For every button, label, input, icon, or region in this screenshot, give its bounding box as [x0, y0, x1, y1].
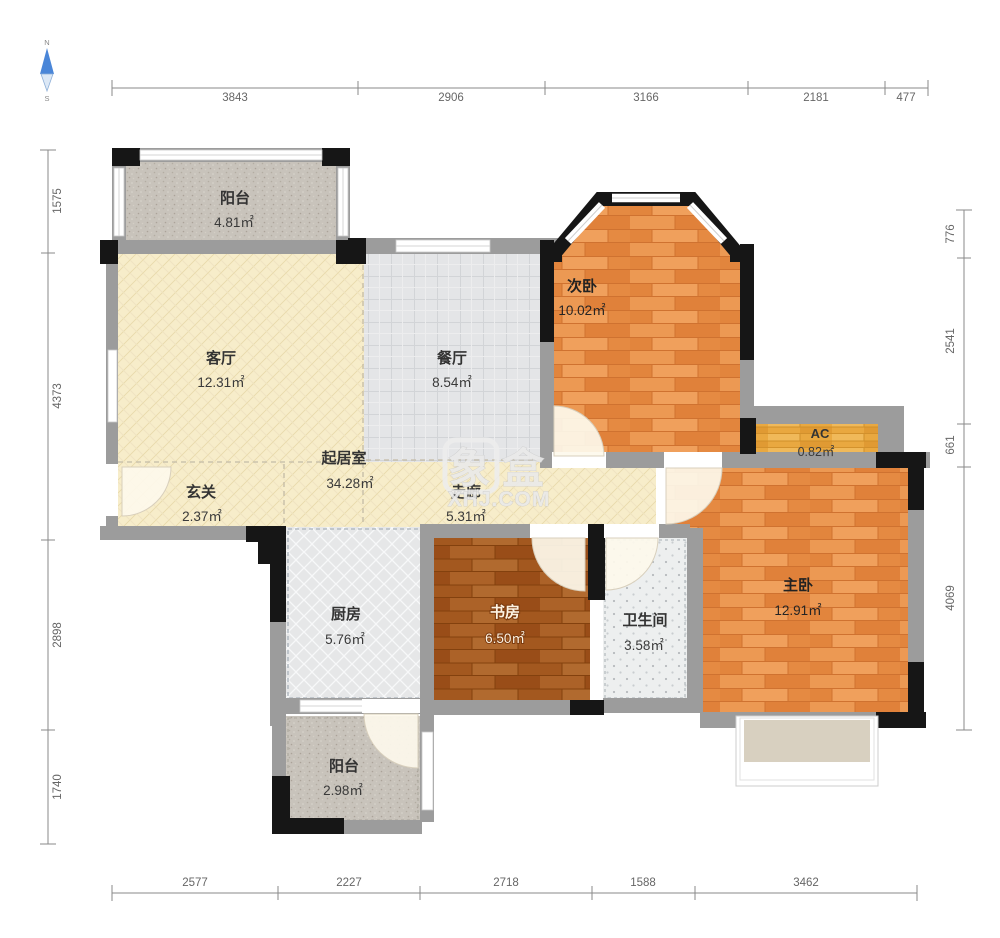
dim-bottom-4: 3462 — [793, 877, 819, 889]
dim-right-2: 661 — [945, 435, 957, 454]
room-living-area: 12.31㎡ — [197, 375, 245, 390]
room-balcony-top-label: 阳台 — [220, 189, 250, 207]
room-ac-label: AC — [811, 426, 830, 441]
dim-top-2: 3166 — [633, 92, 659, 104]
room-ac-area: 0.82㎡ — [798, 445, 835, 459]
room-study-label: 书房 — [490, 603, 520, 621]
dim-bottom-2: 2718 — [493, 877, 519, 889]
dim-top-4: 477 — [896, 92, 915, 104]
dim-top-3: 2181 — [803, 92, 829, 104]
door-opening — [664, 452, 722, 468]
door-opening — [530, 524, 588, 538]
door-opening — [362, 699, 420, 713]
dim-left-3: 1740 — [52, 774, 64, 800]
room-bedroom2-area: 10.02㎡ — [558, 303, 606, 318]
dim-bottom-3: 1588 — [630, 877, 656, 889]
watermark-title: 象盒 — [448, 445, 556, 492]
window — [422, 732, 433, 810]
room-bathroom-label: 卫生间 — [622, 611, 667, 629]
room-bedroom2-label: 次卧 — [567, 277, 597, 295]
dim-bottom-0: 2577 — [182, 877, 208, 889]
room-balcony-top-area: 4.81㎡ — [214, 215, 254, 230]
watermark: 象盒 XHJ.COM — [445, 440, 556, 511]
room-living-zone-area: 34.28㎡ — [326, 476, 374, 491]
dim-right-3: 4069 — [945, 585, 957, 611]
room-corridor-area: 5.31㎡ — [446, 509, 486, 524]
room-master-area: 12.91㎡ — [774, 603, 822, 618]
dim-bottom-1: 2227 — [336, 877, 362, 889]
compass-south-label: S — [44, 94, 49, 103]
room-master-label: 主卧 — [783, 576, 813, 594]
room-foyer-label: 玄关 — [186, 483, 216, 501]
room-dining-area: 8.54㎡ — [432, 375, 472, 390]
door-opening — [104, 464, 118, 516]
room-balcony-bottom-area: 2.98㎡ — [323, 783, 363, 798]
bay-window-sill — [744, 720, 870, 762]
dim-right-1: 2541 — [945, 328, 957, 354]
room-bathroom-area: 3.58㎡ — [624, 638, 664, 653]
dim-top-1: 2906 — [438, 92, 464, 104]
room-foyer-area: 2.37㎡ — [182, 509, 222, 524]
room-living-label: 客厅 — [205, 349, 236, 367]
room-dining-label: 餐厅 — [437, 349, 467, 367]
room-kitchen-area: 5.76㎡ — [325, 632, 365, 647]
dim-left-0: 1575 — [52, 188, 64, 214]
watermark-site: XHJ.COM — [448, 488, 551, 511]
floor-plan-canvas: 3843 2906 3166 2181 477 2577 2227 2718 1… — [0, 0, 1000, 938]
compass-north-label: N — [44, 38, 49, 47]
room-kitchen-label: 厨房 — [331, 605, 361, 623]
dim-top-0: 3843 — [222, 92, 248, 104]
room-living-zone-label: 起居室 — [320, 449, 366, 467]
floor-plan-page: 3843 2906 3166 2181 477 2577 2227 2718 1… — [0, 0, 1000, 938]
dim-left-2: 2898 — [52, 622, 64, 648]
window — [108, 350, 117, 422]
room-balcony-bottom-label: 阳台 — [329, 757, 359, 775]
dim-right-0: 776 — [945, 224, 957, 243]
dim-left-1: 4373 — [52, 383, 64, 409]
door-opening — [604, 524, 659, 538]
room-study-area: 6.50㎡ — [485, 631, 525, 646]
